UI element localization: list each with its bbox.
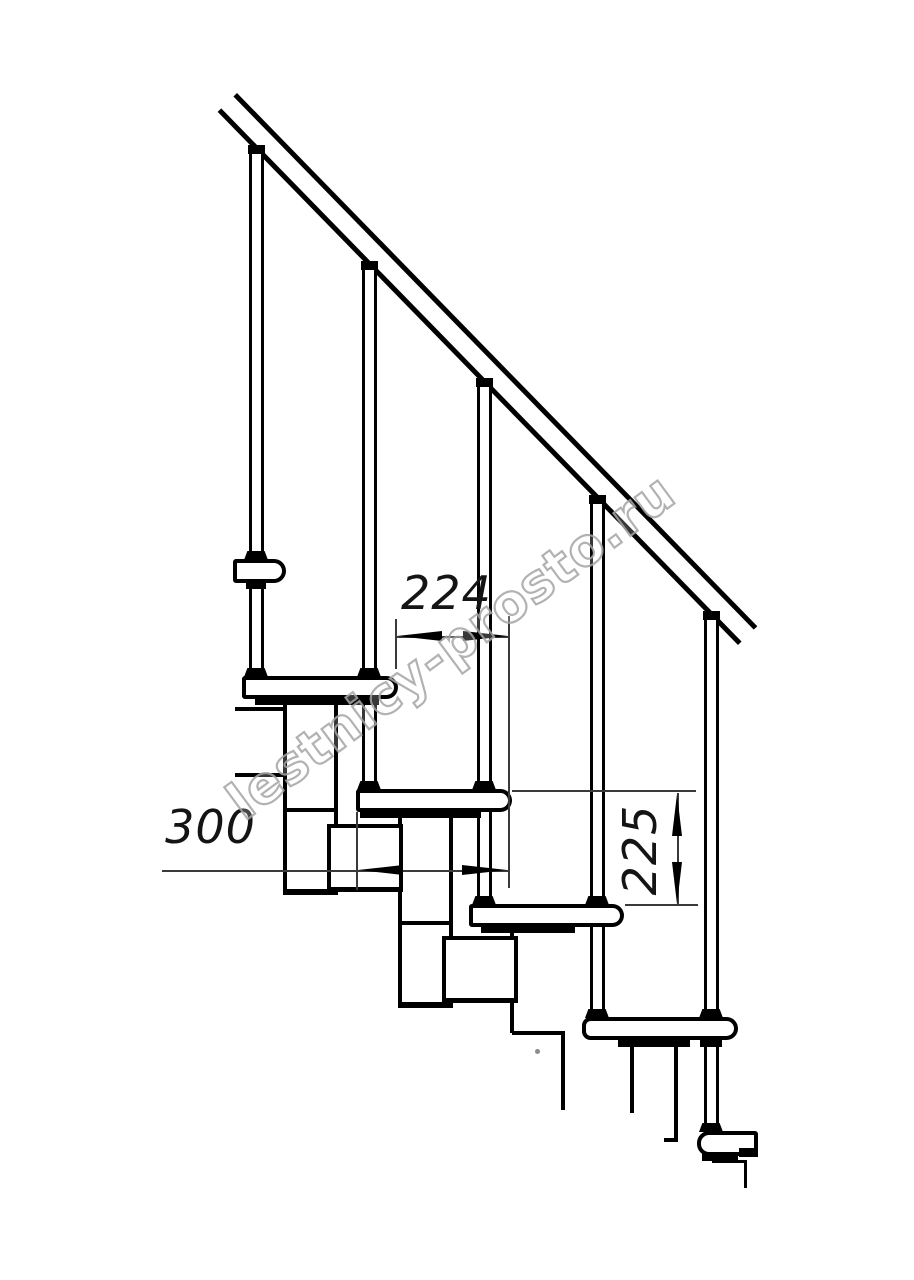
- tread-1-shadow: [246, 583, 266, 589]
- dim-300-label: 300: [158, 804, 263, 850]
- dim-225-arrow-down: [672, 862, 682, 904]
- baluster-5-underpass: [700, 1039, 722, 1047]
- tread-5: [582, 1017, 738, 1040]
- tread-5-shadow: [618, 1039, 690, 1047]
- tread-1-nose: [233, 559, 286, 583]
- baluster-5-collar: [699, 1009, 723, 1018]
- watermark: lestnicy-prosto.ru: [0, 0, 914, 1280]
- baluster-1: [249, 153, 264, 677]
- dim-224-300-ext-right: [508, 616, 510, 888]
- baluster-2-foot: [357, 781, 381, 790]
- support-module-step5-right-edge: [674, 1046, 678, 1142]
- baluster-4-collar: [585, 896, 609, 905]
- baluster-3-foot: [472, 896, 496, 905]
- baluster-2-collar: [357, 668, 381, 677]
- drawing-break-line-v: [744, 1160, 747, 1188]
- tread-2: [242, 676, 398, 699]
- baluster-4-rail-cap: [589, 495, 606, 504]
- landing-mount-bracket: [235, 707, 287, 777]
- baluster-5-rail-cap: [703, 611, 720, 620]
- baluster-1-collar: [244, 551, 268, 560]
- dim-224-label: 224: [401, 570, 491, 616]
- dim-225-label: 225: [617, 795, 663, 905]
- baluster-5-foot: [699, 1123, 723, 1132]
- support-module-step4-ledge: [512, 1031, 563, 1035]
- baluster-2-rail-cap: [361, 261, 378, 270]
- baluster-3-rail-cap: [476, 378, 493, 387]
- support-module-step2-joint-line: [283, 808, 338, 812]
- tread-6-shadow: [702, 1152, 738, 1161]
- tread-4-shadow: [481, 925, 575, 933]
- dim-224-ext-left: [395, 619, 397, 669]
- baluster-2: [362, 269, 377, 790]
- staircase-technical-drawing: 224 300 225 lestnicy-prosto.ru: [0, 0, 914, 1280]
- baluster-3-collar: [472, 781, 496, 790]
- dim-225-ext-top: [512, 790, 696, 792]
- dim-300-ext-left: [356, 812, 358, 890]
- baluster-4: [590, 503, 605, 1018]
- dim-300-arrow-left: [358, 865, 403, 875]
- tread-4: [469, 904, 624, 927]
- support-module-step5-hook: [664, 1138, 676, 1142]
- stray-dot: [535, 1049, 540, 1054]
- tread-3: [356, 789, 512, 812]
- dim-300-arrow-right: [462, 865, 507, 875]
- dim-224-arrow-right: [463, 631, 508, 641]
- tread-2-shadow: [255, 697, 379, 705]
- baluster-5: [704, 619, 719, 1132]
- module-connector-box-2: [327, 824, 403, 892]
- dim-300-line: [162, 870, 509, 872]
- baluster-1-foot: [244, 668, 268, 677]
- tread-6-shadow-bit: [739, 1148, 758, 1157]
- tread-3-shadow: [360, 810, 481, 818]
- dim-225-arrow-up: [672, 794, 682, 836]
- baluster-3: [477, 386, 492, 905]
- baluster-4-foot: [585, 1009, 609, 1018]
- baluster-1-rail-cap: [248, 145, 265, 154]
- module-connector-box-3: [442, 936, 518, 1003]
- support-module-step3-joint-line: [398, 921, 453, 925]
- support-module-step5-left-edge: [630, 1046, 634, 1113]
- dim-224-arrow-left: [397, 631, 442, 641]
- support-module-step4-right-edge: [561, 1031, 565, 1110]
